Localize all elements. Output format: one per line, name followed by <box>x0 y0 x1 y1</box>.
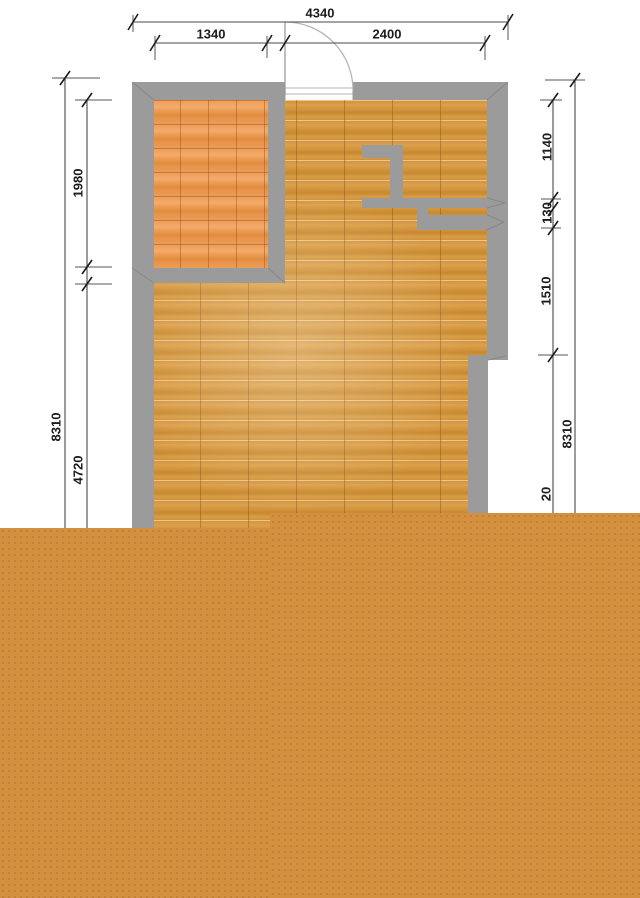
dim-label-left-lower: 4720 <box>71 456 86 485</box>
dim-label-right-total: 8310 <box>560 420 575 449</box>
dim-label-top-total: 4340 <box>306 6 335 21</box>
dim-label-left-room-depth: 1980 <box>71 169 86 198</box>
dim-label-right-mid: 1510 <box>539 277 554 306</box>
interior-wall-bar-lower <box>417 215 487 230</box>
outer-wall-right-lower <box>468 355 488 513</box>
dim-label-right-lower-clipped: 20 <box>539 487 554 501</box>
dim-label-left-total: 8310 <box>49 413 64 442</box>
outer-wall-left <box>132 82 154 528</box>
dim-label-right-upper: 1140 <box>540 133 555 161</box>
dim-label-top-right-segment: 2400 <box>373 27 402 42</box>
unrendered-block-left <box>0 528 270 898</box>
door-swing-arc <box>285 22 353 90</box>
floor-plan-canvas: 4340 1340 2400 1980 8310 4720 1140 130 1… <box>0 0 640 898</box>
dim-label-right-niche: 130 <box>540 202 555 224</box>
outer-wall-right-upper <box>487 82 508 360</box>
dim-label-top-left-segment: 1340 <box>197 27 226 42</box>
door-opening <box>285 82 353 100</box>
side-room-floor <box>154 100 268 268</box>
interior-wall-bar-upper <box>362 198 487 208</box>
room-bottom-wall <box>132 268 285 283</box>
unrendered-block-right <box>270 513 640 898</box>
room-divider-wall <box>268 100 285 283</box>
